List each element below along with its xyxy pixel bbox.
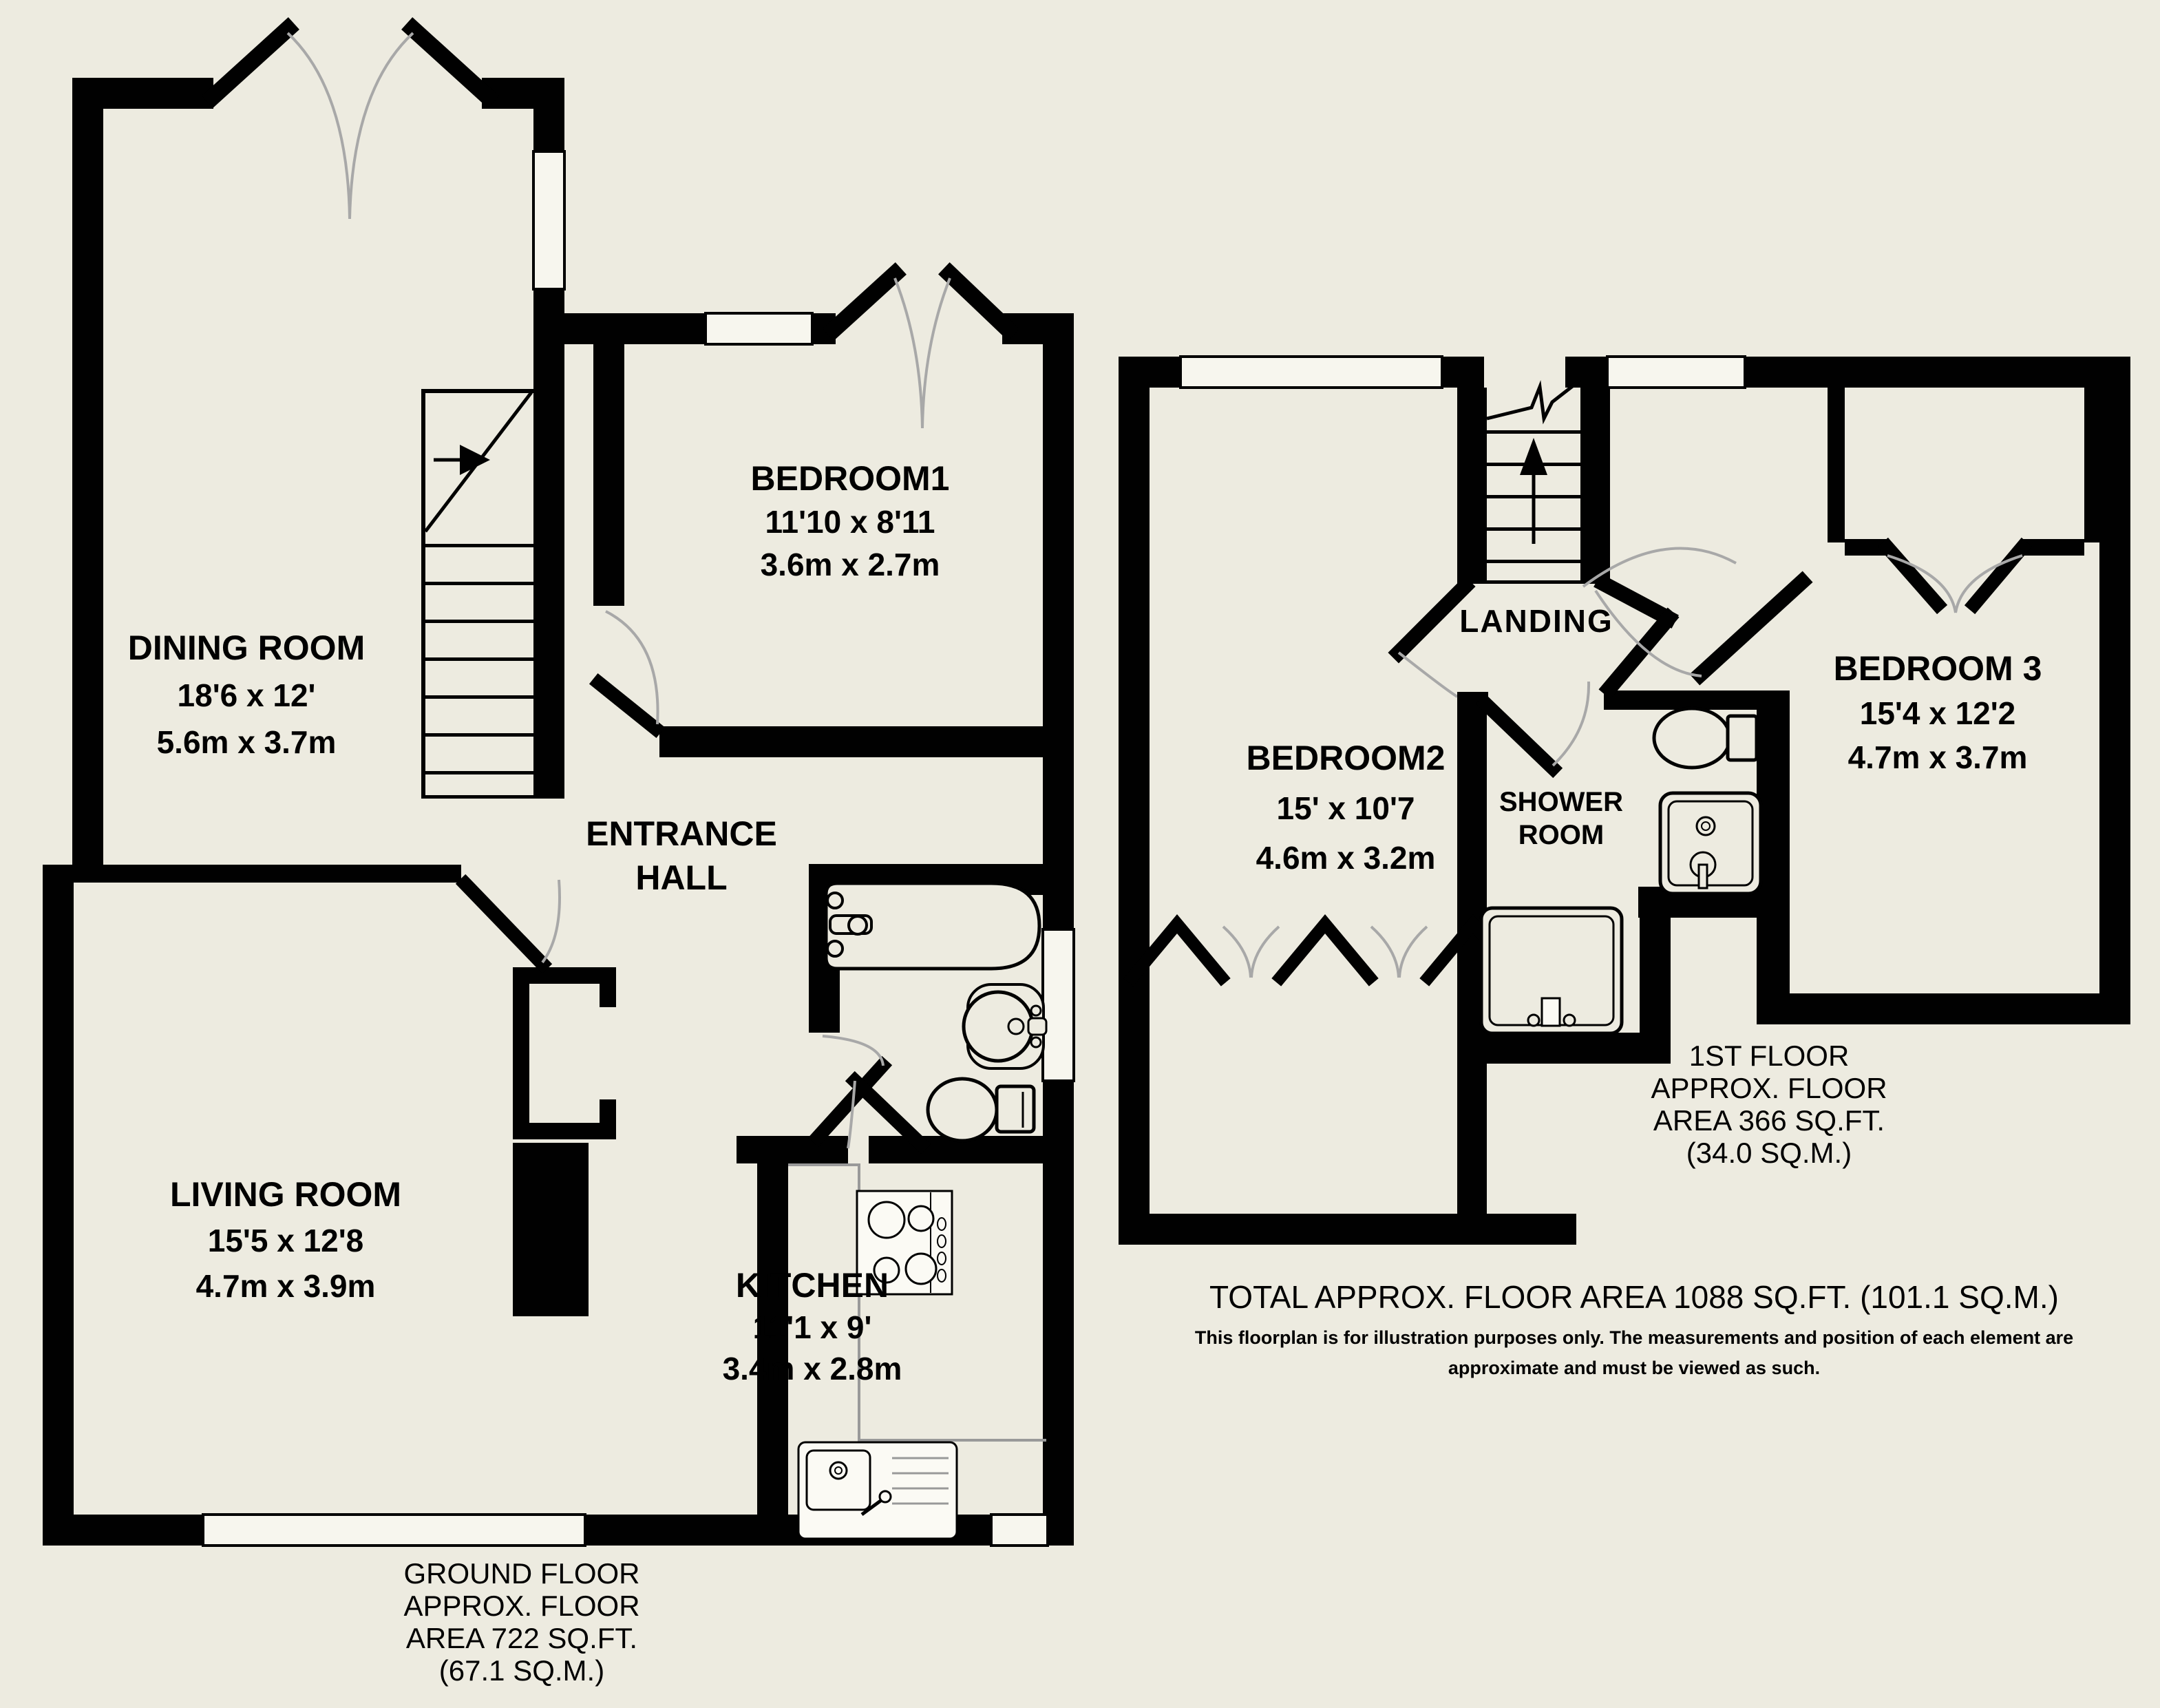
door-arc [1371, 927, 1399, 978]
window [1607, 357, 1745, 388]
wall [2099, 357, 2130, 1024]
basin-tap [1028, 1018, 1046, 1035]
wall [2022, 539, 2084, 556]
basin-tap-dot [1031, 1006, 1041, 1015]
door-arc [895, 278, 922, 428]
dining-room-metric: 5.6m x 3.7m [157, 724, 337, 760]
landing-label: LANDING [1459, 603, 1613, 639]
door-arc [350, 33, 413, 219]
first-floor-walls [1119, 357, 2130, 1245]
door-leaf [599, 683, 655, 728]
door-arc [542, 880, 560, 962]
ground-caption-line2: APPROX. FLOOR [403, 1590, 639, 1622]
wall [1565, 357, 1607, 388]
sink-drain-inner [835, 1467, 842, 1474]
basin-drain-inner [1702, 822, 1710, 830]
shower-room-label-line1: SHOWER [1499, 787, 1623, 817]
wall [533, 78, 564, 151]
stair-edge [421, 389, 533, 393]
living-room-imperial: 15'5 x 12'8 [208, 1223, 364, 1258]
first-floor: BEDROOM2 15' x 10'7 4.6m x 3.2m LANDING … [1119, 357, 2130, 1245]
first-caption-line2: APPROX. FLOOR [1651, 1072, 1887, 1104]
toilet-bowl [1654, 708, 1730, 768]
door-leaf [213, 29, 288, 96]
stair-tread [425, 733, 533, 737]
wall [1457, 1033, 1671, 1064]
door-arc [288, 33, 350, 219]
shower-room-label-line2: ROOM [1518, 820, 1604, 850]
wall [737, 1136, 848, 1163]
toilet-fixture-ground [928, 1079, 1034, 1141]
hob-knob [938, 1235, 946, 1247]
shower-drain-dot [1564, 1015, 1575, 1026]
wall [1580, 388, 1610, 584]
wall [1119, 357, 1150, 1245]
hob-burner [906, 1254, 936, 1284]
bath-tap [827, 893, 843, 908]
ground-caption-line4: (67.1 SQ.M.) [439, 1654, 604, 1687]
disclaimer-line1: This floorplan is for illustration purpo… [1195, 1327, 2073, 1348]
total-floor-area: TOTAL APPROX. FLOOR AREA 1088 SQ.FT. (10… [1209, 1279, 2059, 1315]
living-room-door [465, 880, 560, 964]
shower-tray-fixture [1481, 908, 1622, 1033]
basin-tap-dot [1031, 1037, 1041, 1047]
hob-knob [938, 1252, 946, 1265]
door-leaf [1399, 587, 1465, 653]
stair-tread [1487, 580, 1580, 584]
staircase-first [1487, 380, 1580, 584]
ground-caption-line3: AREA 722 SQ.FT. [406, 1622, 637, 1654]
bedroom3-label: BEDROOM 3 [1834, 649, 2042, 688]
stair-tread [425, 657, 533, 661]
wall [533, 289, 564, 799]
entrance-hall-label-line2: HALL [635, 858, 727, 897]
wall [1828, 388, 1845, 542]
door-leaf [950, 274, 1008, 329]
stair-tread [425, 544, 533, 547]
bedroom1-imperial: 11'10 x 8'11 [765, 504, 935, 540]
bedroom3-metric: 4.7m x 3.7m [1848, 739, 2028, 775]
chimney-breast [513, 1143, 589, 1316]
dining-room-label: DINING ROOM [128, 629, 365, 667]
bedroom2-imperial: 15' x 10'7 [1277, 790, 1415, 826]
stair-tread [425, 695, 533, 699]
dining-room-imperial: 18'6 x 12' [178, 677, 316, 713]
ground-floor-walls [43, 78, 1074, 1546]
window [706, 313, 812, 344]
hob-burner [869, 1202, 904, 1238]
bath-tap [827, 941, 843, 956]
first-caption-line1: 1ST FLOOR [1689, 1040, 1850, 1072]
door-leaf [465, 884, 542, 964]
window [533, 151, 564, 289]
door-leaf [413, 29, 487, 96]
bedroom1-label: BEDROOM1 [751, 459, 950, 498]
toilet-fixture-first [1654, 708, 1757, 768]
living-room-label: LIVING ROOM [170, 1175, 401, 1214]
door-arc [1399, 927, 1427, 978]
sink-tap-head [880, 1491, 891, 1502]
wall [593, 313, 624, 606]
kitchen-label: KITCHEN [736, 1266, 889, 1305]
wall [72, 78, 103, 883]
bathtub-fixture [826, 883, 1039, 969]
door-arc [1251, 927, 1279, 978]
door-leaf [855, 1081, 921, 1144]
wall [72, 865, 461, 883]
shower-drain [1542, 998, 1560, 1026]
dining-bay-doors [213, 29, 487, 219]
wall [1043, 313, 1074, 929]
entrance-hall-label-line1: ENTRANCE [586, 814, 777, 853]
wall [1604, 690, 1759, 710]
door-arc [1553, 682, 1589, 766]
toilet-cistern [997, 1086, 1034, 1132]
window [203, 1515, 585, 1546]
footer: TOTAL APPROX. FLOOR AREA 1088 SQ.FT. (10… [1195, 1279, 2073, 1378]
hob-burner [909, 1206, 933, 1231]
bedroom2-metric: 4.6m x 3.2m [1256, 840, 1436, 876]
stair-tread [1487, 430, 1580, 434]
bedroom1-metric: 3.6m x 2.7m [761, 547, 940, 582]
stair-tread [1487, 560, 1580, 563]
stair-tread [425, 620, 533, 623]
wall [1119, 1214, 1576, 1245]
wall [1442, 357, 1484, 388]
wall [1745, 357, 2130, 388]
door-arc [1223, 927, 1251, 978]
stair-tread [425, 582, 533, 585]
window [991, 1515, 1048, 1546]
wall [659, 726, 1074, 757]
window [1180, 357, 1442, 388]
closet-wall [600, 1099, 616, 1139]
stair-tread [425, 771, 533, 774]
staircase-ground [421, 389, 533, 799]
shower-drain-dot [1528, 1015, 1539, 1026]
door-leaf [1485, 704, 1553, 768]
disclaimer-line2: approximate and must be viewed as such. [1448, 1358, 1820, 1378]
window [1043, 929, 1074, 1081]
washbasin-fixture-first [1660, 793, 1761, 894]
bedroom2-label: BEDROOM2 [1247, 739, 1446, 777]
stair-direction-arrow-icon [460, 445, 490, 475]
wall [1757, 993, 2130, 1024]
bedroom3-bay-doors [1887, 547, 2022, 613]
stair-tread [425, 795, 533, 799]
closet-wall [513, 967, 529, 1139]
sink-bowl [807, 1451, 870, 1510]
basin-drain [1008, 1019, 1024, 1034]
toilet-cistern [1728, 716, 1757, 760]
door-leaf [1604, 584, 1669, 618]
wall [1457, 388, 1487, 584]
stair-up-arrow-icon [1520, 438, 1547, 475]
kitchen-imperial: 11'1 x 9' [753, 1309, 872, 1345]
ground-floor: DINING ROOM 18'6 x 12' 5.6m x 3.7m BEDRO… [43, 29, 1074, 1687]
door-arc [823, 1036, 883, 1066]
wall [43, 865, 74, 1546]
toilet-bowl [928, 1079, 997, 1141]
folding-door [1280, 924, 1370, 978]
bedroom1-door [599, 611, 658, 728]
hob-knob [938, 1269, 946, 1282]
door-leaf [1609, 618, 1669, 688]
first-caption-line4: (34.0 SQ.M.) [1686, 1137, 1852, 1169]
first-caption-line3: AREA 366 SQ.FT. [1653, 1104, 1885, 1137]
hob-knob [938, 1218, 946, 1230]
door-leaf [834, 274, 895, 329]
closet-wall [600, 967, 616, 1007]
living-room-metric: 4.7m x 3.9m [196, 1268, 376, 1304]
bath-plug [849, 916, 867, 934]
door-arc [922, 278, 950, 428]
wall [2084, 388, 2099, 542]
ground-caption-line1: GROUND FLOOR [403, 1557, 639, 1590]
door-arc [1399, 653, 1457, 697]
door-leaf [1700, 582, 1802, 675]
wall [1640, 887, 1671, 1064]
bedroom3-imperial: 15'4 x 12'2 [1860, 695, 2016, 731]
wall [72, 78, 213, 109]
stair-stringer [421, 389, 425, 799]
kitchen-sink-fixture [798, 1442, 957, 1539]
floorplan: DINING ROOM 18'6 x 12' 5.6m x 3.7m BEDRO… [0, 0, 2160, 1708]
kitchen-metric: 3.4m x 2.8m [723, 1351, 902, 1387]
washbasin-fixture [964, 984, 1046, 1068]
bedroom1-bay-doors [834, 274, 1008, 428]
basin-tap-stem [1699, 865, 1707, 888]
